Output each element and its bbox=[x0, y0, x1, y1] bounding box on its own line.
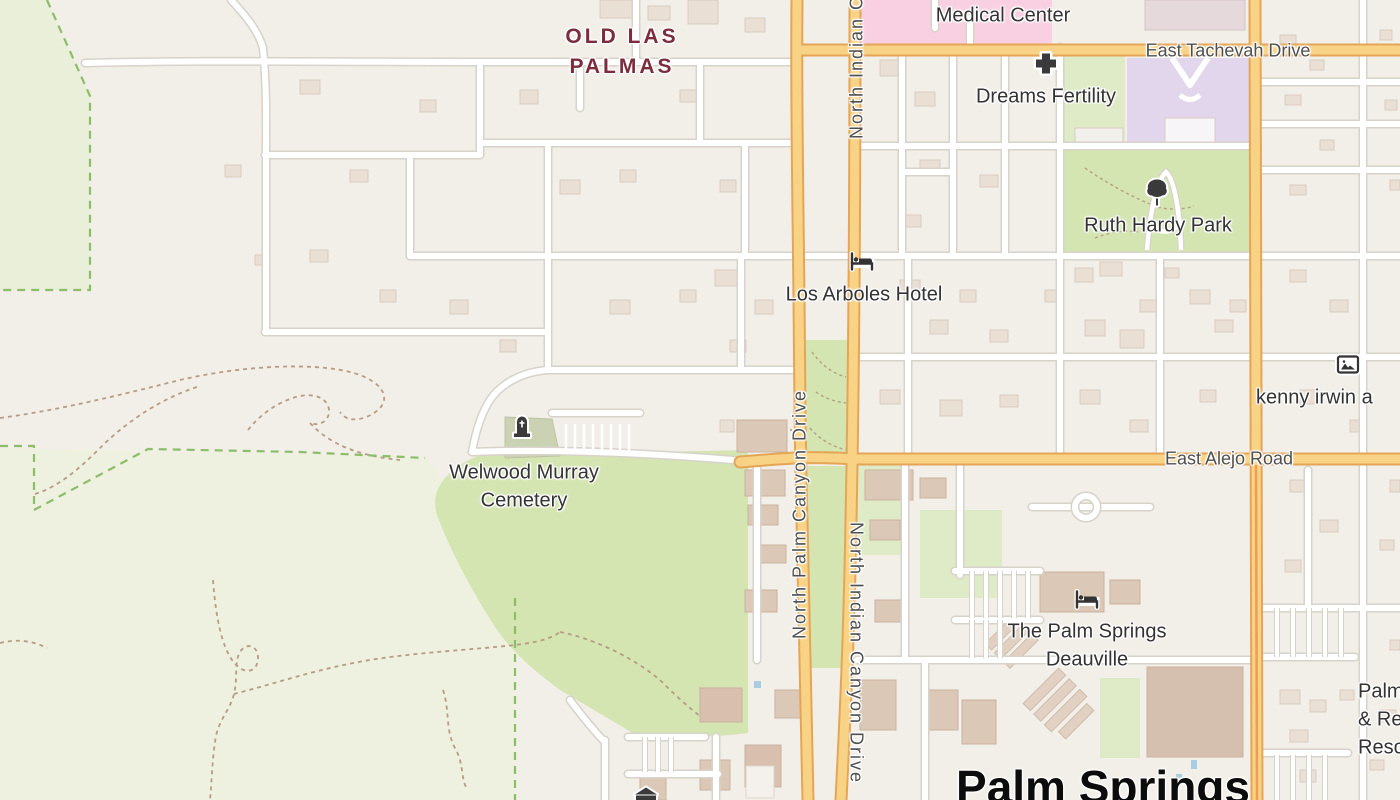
map-canvas[interactable]: OLD LAS PALMAS Medical Center East Tache… bbox=[0, 0, 1400, 800]
map-tiles bbox=[0, 0, 1400, 800]
